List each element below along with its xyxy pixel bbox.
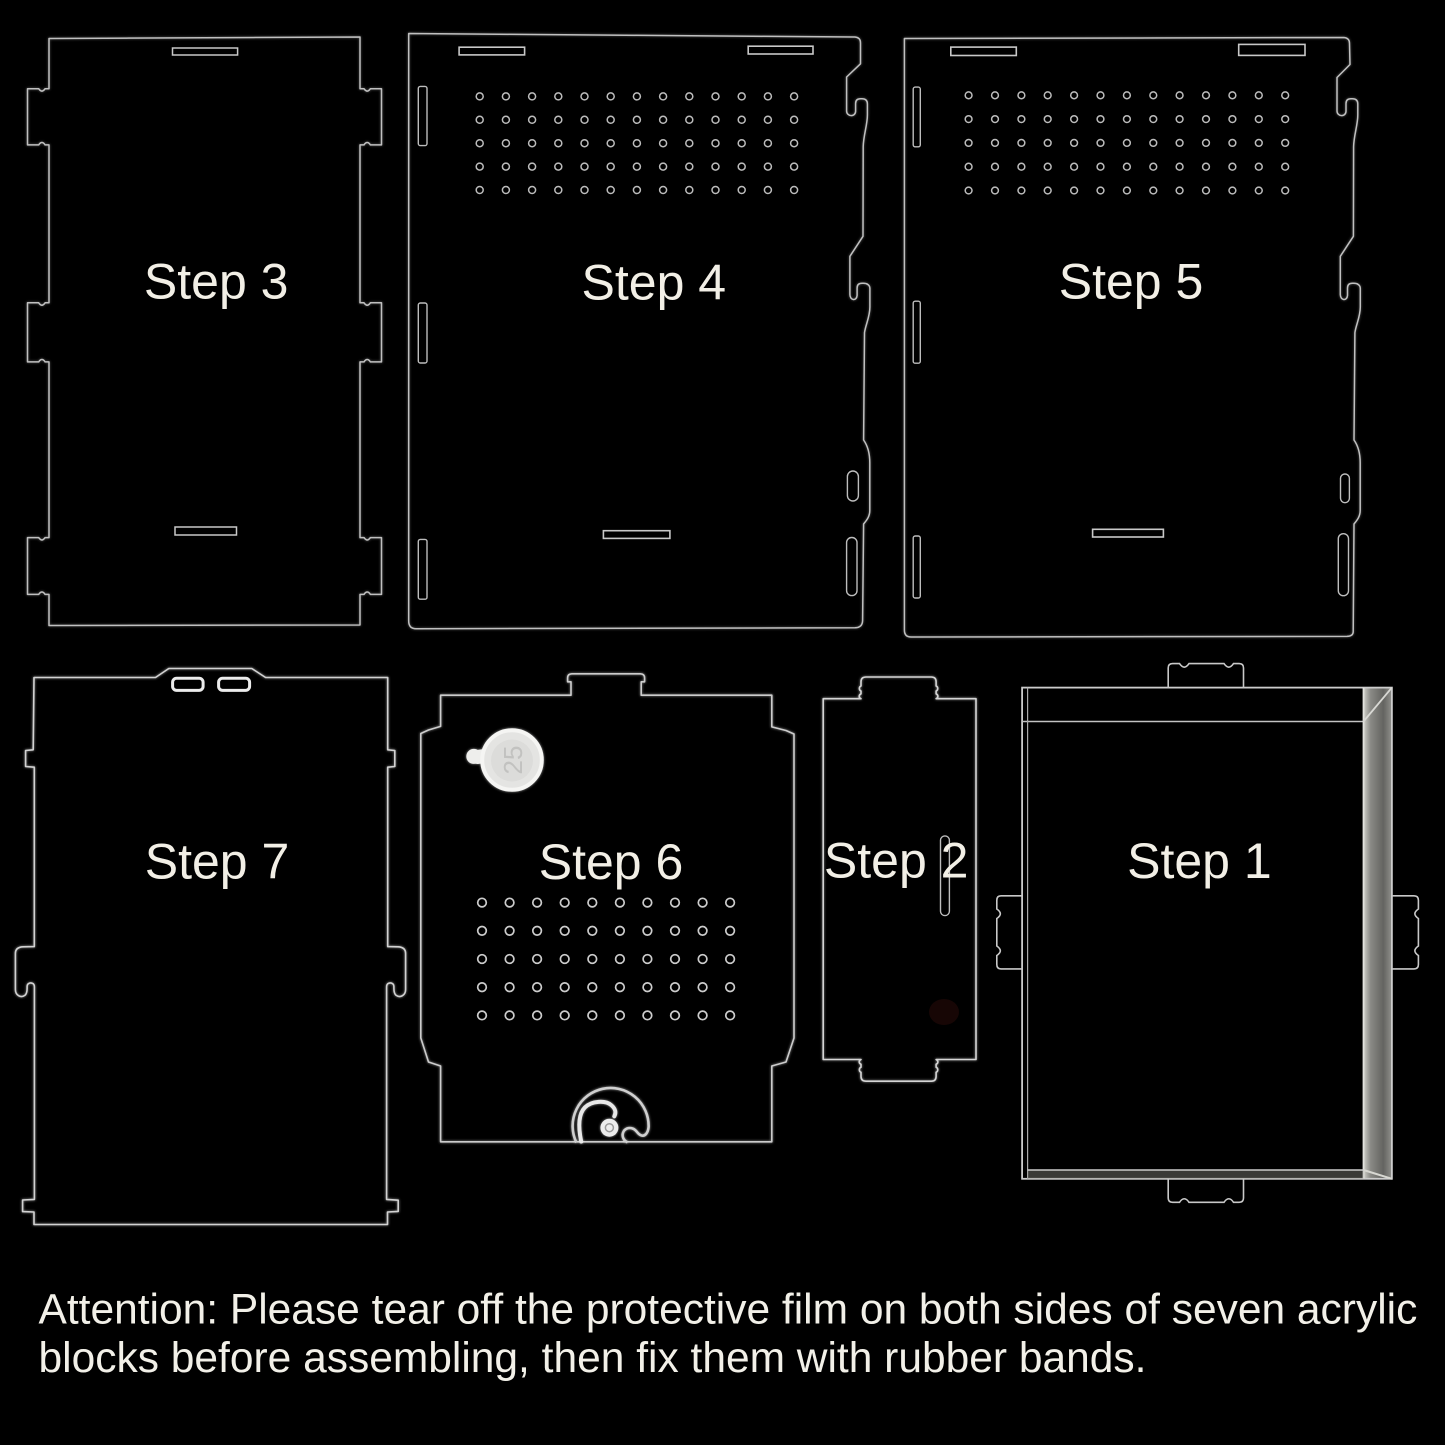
svg-text:Step 6: Step 6 [539,834,684,890]
svg-text:Step 2: Step 2 [824,833,969,889]
svg-text:25: 25 [498,746,528,775]
svg-text:Step 5: Step 5 [1059,254,1204,310]
svg-text:Step 7: Step 7 [145,834,290,890]
svg-text:blocks before assembling, then: blocks before assembling, then fix them … [39,1335,1147,1382]
svg-text:Step 4: Step 4 [582,255,727,311]
svg-text:Attention: Please tear off the: Attention: Please tear off the protectiv… [39,1287,1418,1334]
svg-text:Step 1: Step 1 [1127,833,1272,889]
svg-text:Step 3: Step 3 [144,254,289,310]
